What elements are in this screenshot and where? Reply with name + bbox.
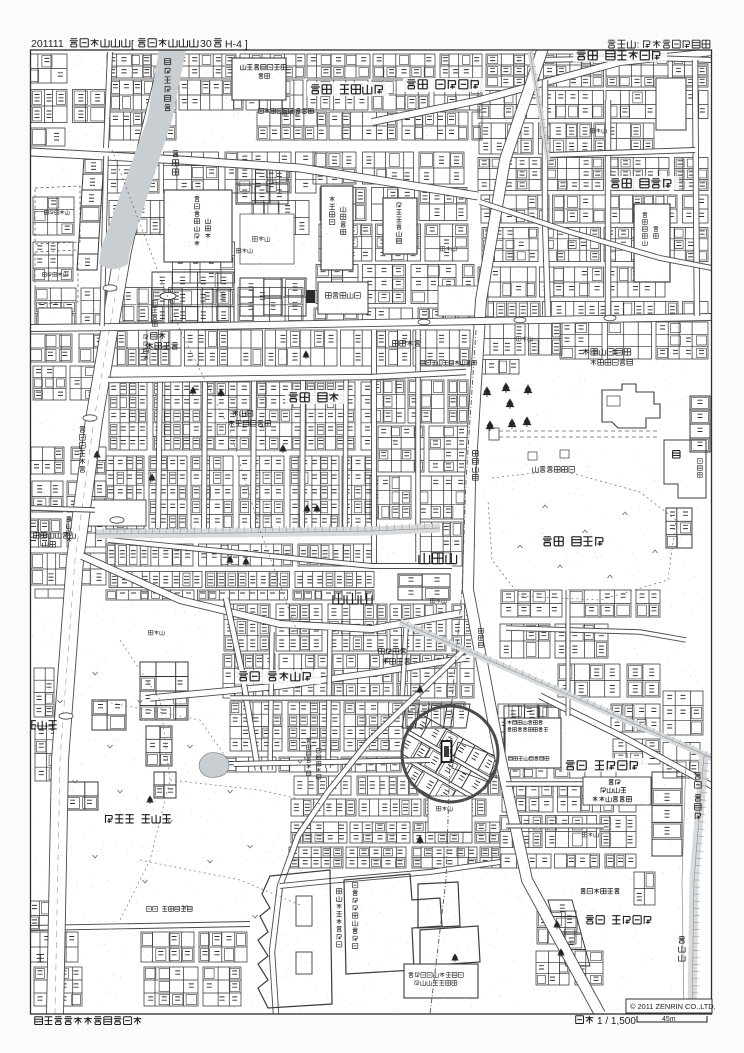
svg-text:45m: 45m (662, 1016, 676, 1023)
svg-text::: : (637, 39, 640, 50)
svg-text:201111: 201111 (31, 38, 64, 50)
svg-text:H-4 ]: H-4 ] (225, 39, 248, 51)
svg-text:© 2011 ZENRIN CO.,LTD.: © 2011 ZENRIN CO.,LTD. (630, 1002, 716, 1011)
svg-text:30: 30 (200, 38, 212, 50)
svg-text:1 / 1,500: 1 / 1,500 (597, 1016, 636, 1027)
svg-text:[: [ (131, 39, 134, 51)
